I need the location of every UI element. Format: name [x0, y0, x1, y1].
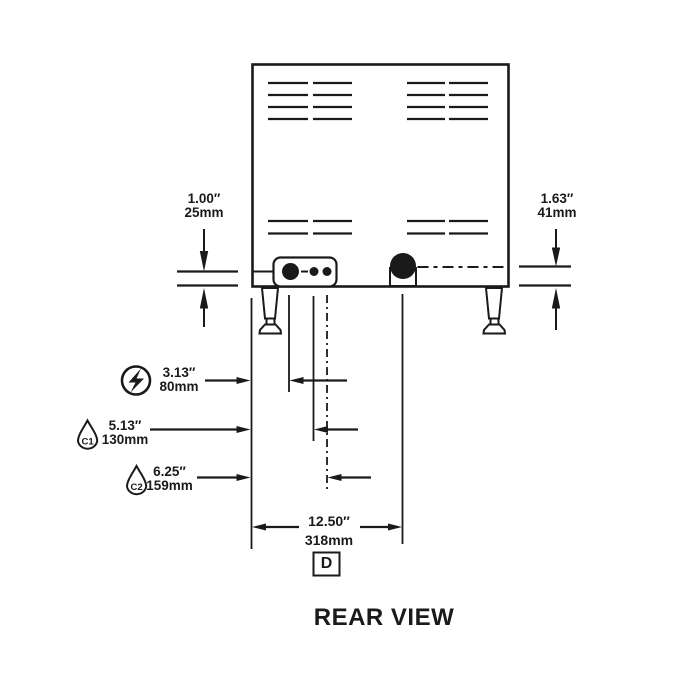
legs: [260, 288, 506, 334]
dim-c2-metric: 159mm: [141, 479, 198, 493]
dim-c1-label: 5.13″ 130mm: [96, 419, 154, 447]
detail-marker-d: D: [313, 552, 340, 575]
water-drop-c1-icon: C1: [78, 421, 97, 449]
dim-electrical-inches: 3.13″: [156, 366, 202, 380]
lightning-bolt-icon: [122, 367, 150, 395]
view-title: REAR VIEW: [283, 605, 485, 631]
dim-left-offset-label: 1.00″ 25mm: [168, 192, 240, 220]
dim-c2-arrows: [197, 474, 371, 481]
dim-left-offset-inches: 1.00″: [168, 192, 240, 206]
rear-view-diagram: C1 C2 1.00″ 25mm 1.63″ 41mm 3.13″ 80mm 5…: [0, 0, 700, 700]
dim-c1-arrows: [150, 426, 358, 433]
equipment-cabinet-outline: [253, 65, 509, 287]
dim-overall-width-label: 12.50″ 318mm: [297, 512, 361, 550]
dim-c1-metric: 130mm: [96, 433, 154, 447]
water-connector-c2: [323, 267, 332, 276]
dim-left-offset: [177, 229, 238, 327]
dim-right-offset-label: 1.63″ 41mm: [521, 192, 593, 220]
c1-label: C1: [82, 437, 95, 448]
power-connector: [282, 263, 299, 280]
dim-c1-inches: 5.13″: [96, 419, 154, 433]
water-connector-c1: [310, 267, 319, 276]
dim-overall-width-metric: 318mm: [297, 531, 361, 550]
dim-overall-width-inches: 12.50″: [297, 512, 361, 531]
dim-right-offset: [519, 229, 571, 330]
dim-right-offset-inches: 1.63″: [521, 192, 593, 206]
dim-c2-inches: 6.25″: [141, 465, 198, 479]
dim-electrical-metric: 80mm: [156, 380, 202, 394]
dim-electrical-arrows: [205, 377, 347, 384]
dim-electrical-label: 3.13″ 80mm: [156, 366, 202, 394]
dim-left-offset-metric: 25mm: [168, 206, 240, 220]
dim-c2-label: 6.25″ 159mm: [141, 465, 198, 493]
dim-right-offset-metric: 41mm: [521, 206, 593, 220]
diagram-linework: C1 C2: [0, 0, 700, 700]
